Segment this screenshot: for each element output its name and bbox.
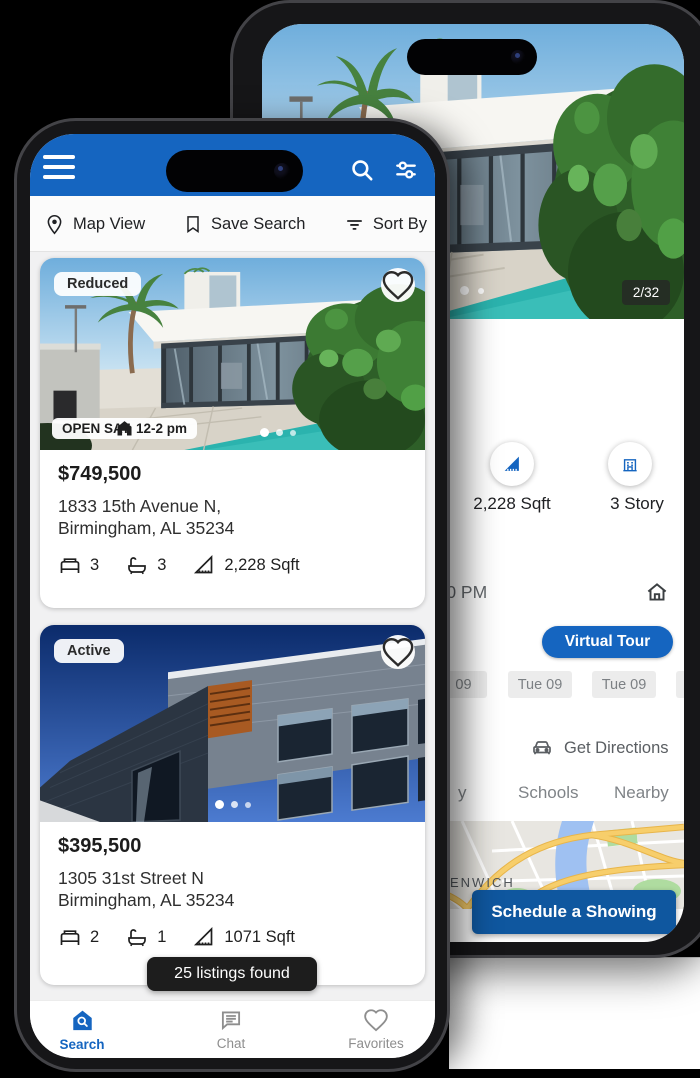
heart-icon — [363, 1007, 389, 1033]
save-search-label: Save Search — [211, 215, 305, 234]
nav-favorites-label: Favorites — [348, 1036, 404, 1051]
status-badge: Reduced — [54, 272, 141, 296]
search-home-icon — [69, 1007, 96, 1034]
sqft-value: 1071 Sqft — [224, 928, 295, 947]
bed-count: 2 — [90, 928, 99, 947]
bed-icon — [58, 925, 82, 949]
results-toolbar: Map View Save Search Sort By — [30, 196, 435, 252]
listing-price: $749,500 — [58, 463, 407, 486]
bed-icon — [58, 553, 82, 577]
photo-counter-badge: 2/32 — [622, 280, 670, 305]
filter-settings-icon[interactable] — [393, 157, 419, 183]
listing-features: 3 3 — [58, 553, 407, 577]
results-list: Reduced OPEN SAT, 12-2 pm — [30, 252, 435, 1000]
sqft-icon — [192, 553, 216, 577]
tab-partial[interactable]: y — [458, 783, 467, 803]
map-view-button[interactable]: Map View — [44, 196, 145, 252]
nav-chat[interactable]: Chat — [186, 1007, 276, 1051]
get-directions-label: Get Directions — [564, 739, 669, 758]
listing-photo[interactable]: Reduced OPEN SAT, 12-2 pm — [40, 258, 425, 450]
sqft-icon — [192, 925, 216, 949]
sort-by-button[interactable]: Sort By — [344, 196, 427, 252]
listing-card[interactable]: Reduced OPEN SAT, 12-2 pm — [40, 258, 425, 608]
listing-card[interactable]: Active $395,500 1305 31st Street N Birm — [40, 625, 425, 985]
listing-address: 1305 31st Street N Birmingham, AL 35234 — [58, 868, 407, 911]
heart-icon — [381, 635, 415, 669]
ruler-icon — [501, 453, 523, 475]
listing-features: 2 1 — [58, 925, 407, 949]
virtual-tour-button[interactable]: Virtual Tour — [542, 626, 673, 658]
schedule-showing-button[interactable]: Schedule a Showing — [472, 890, 676, 934]
carousel-dots[interactable] — [40, 800, 425, 809]
heart-icon — [381, 268, 415, 302]
camera-icon — [274, 163, 290, 179]
save-search-button[interactable]: Save Search — [183, 196, 305, 252]
bath-icon — [125, 925, 149, 949]
car-icon — [530, 736, 554, 760]
date-chip[interactable] — [676, 671, 684, 698]
location-pin-icon — [44, 214, 65, 235]
open-house-icon — [644, 579, 670, 610]
sqft-value: 2,228 Sqft — [224, 556, 299, 575]
bottom-navigation: Search Chat — [30, 1000, 435, 1058]
date-chip[interactable]: Tue 09 — [592, 671, 656, 698]
building-icon — [620, 454, 640, 474]
bed-count: 3 — [90, 556, 99, 575]
nav-search-label: Search — [59, 1037, 104, 1052]
status-badge: Active — [54, 639, 124, 663]
bath-count: 1 — [157, 928, 166, 947]
bath-icon — [125, 553, 149, 577]
listing-address: 1833 15th Avenue N, Birmingham, AL 35234 — [58, 496, 407, 539]
listing-photo[interactable]: Active — [40, 625, 425, 822]
sort-icon — [344, 214, 365, 235]
marketing-canvas: 2/32 2,228 Sqft 3 Story 2:00 PM — [0, 0, 700, 1078]
sqft-stat-button[interactable] — [490, 442, 534, 486]
nav-favorites[interactable]: Favorites — [331, 1007, 421, 1051]
carousel-dots[interactable] — [130, 428, 425, 437]
search-icon[interactable] — [349, 157, 375, 183]
background-patch — [449, 957, 700, 1069]
bath-count: 3 — [157, 556, 166, 575]
bookmark-icon — [183, 214, 203, 234]
tab-nearby[interactable]: Nearby — [614, 783, 669, 803]
get-directions-button[interactable]: Get Directions — [530, 736, 669, 760]
front-phone-notch — [166, 150, 303, 192]
sort-by-label: Sort By — [373, 215, 427, 234]
tab-schools[interactable]: Schools — [518, 783, 578, 803]
results-count-toast: 25 listings found — [147, 957, 317, 991]
menu-icon[interactable] — [43, 155, 75, 179]
front-phone-frame: Map View Save Search Sort By — [14, 118, 450, 1072]
back-phone-notch — [407, 39, 537, 75]
map-area-label: ENWICH — [450, 875, 515, 890]
story-stat-label: 3 Story — [562, 494, 684, 514]
nav-chat-label: Chat — [217, 1036, 246, 1051]
map-view-label: Map View — [73, 215, 145, 234]
carousel-dots[interactable] — [460, 286, 484, 295]
date-chip[interactable]: Tue 09 — [508, 671, 572, 698]
listing-price: $395,500 — [58, 835, 407, 858]
chat-icon — [218, 1007, 244, 1033]
nav-search[interactable]: Search — [37, 1007, 127, 1052]
favorite-button[interactable] — [381, 268, 415, 302]
results-screen: Map View Save Search Sort By — [30, 134, 435, 1058]
camera-icon — [511, 50, 525, 64]
story-stat-button[interactable] — [608, 442, 652, 486]
favorite-button[interactable] — [381, 635, 415, 669]
